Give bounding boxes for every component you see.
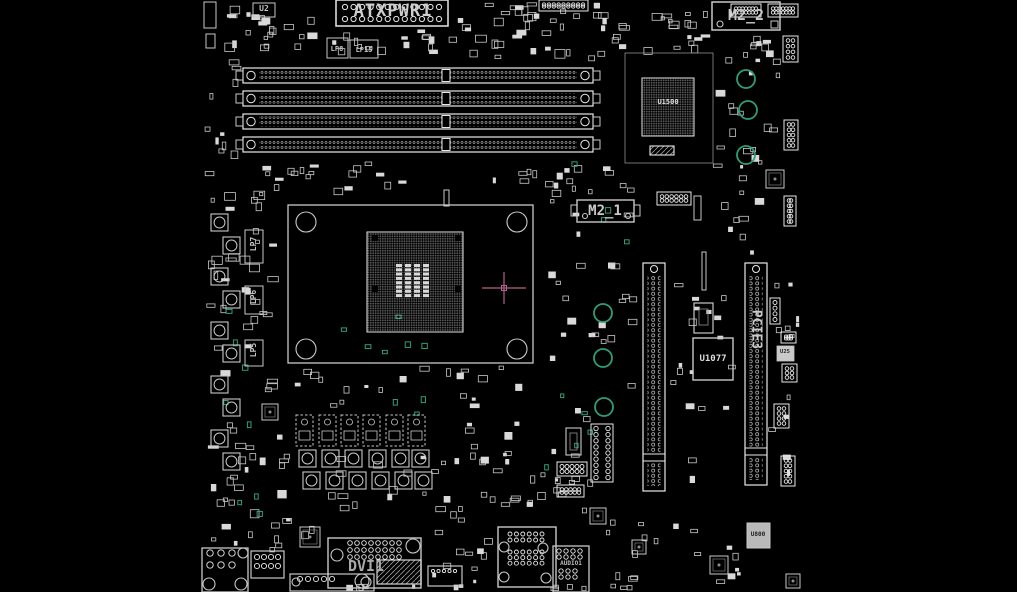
passive-component [475, 35, 486, 42]
passive-component [763, 40, 771, 44]
test-pad [238, 500, 242, 504]
passive-component [717, 580, 725, 584]
passive-component [277, 435, 283, 440]
passive-component [639, 523, 644, 526]
passive-component [231, 475, 238, 479]
passive-component [307, 33, 317, 40]
passive-component [691, 529, 698, 532]
socket-center-pads [414, 273, 420, 276]
circ [538, 543, 548, 553]
passive-component [575, 408, 581, 414]
passive-component [598, 51, 605, 56]
circ [626, 214, 631, 219]
passive-component [465, 28, 471, 32]
passive-component [687, 35, 691, 39]
circ [717, 21, 723, 27]
passive-component [701, 34, 711, 37]
passive-component [538, 493, 546, 500]
passive-component [519, 172, 527, 176]
passive-component [493, 178, 496, 184]
passive-component [473, 580, 476, 583]
socket-center-pads [405, 273, 411, 276]
passive-component [404, 42, 410, 48]
passive-component [211, 484, 216, 491]
rect [771, 21, 778, 28]
passive-component [679, 363, 683, 368]
passive-component [628, 188, 635, 192]
passive-component [520, 179, 529, 184]
passive-component [713, 164, 722, 167]
passive-component [735, 568, 739, 572]
pin-header [782, 364, 797, 382]
passive-component [739, 216, 749, 221]
passive-component [515, 384, 522, 391]
circ [238, 548, 248, 558]
passive-component [417, 30, 425, 34]
passive-component [785, 326, 790, 331]
vrm-choke [299, 450, 316, 467]
passive-component [688, 458, 696, 463]
passive-component [227, 423, 232, 428]
pin-header [784, 196, 796, 226]
socket-center-pads [423, 273, 429, 276]
passive-component [421, 456, 426, 459]
test-pad [575, 443, 578, 448]
passive-component [379, 388, 382, 393]
socket-center-pads [405, 294, 411, 297]
passive-component [740, 234, 745, 240]
passive-component [471, 444, 477, 449]
vrm-choke [211, 322, 228, 339]
passive-component [716, 90, 726, 97]
passive-component [249, 532, 253, 538]
passive-component [495, 55, 501, 58]
passive-component [730, 129, 736, 137]
label-u2: U2 [259, 5, 269, 13]
vrm-choke [223, 237, 240, 254]
passive-component [756, 59, 761, 62]
passive-component [267, 384, 278, 389]
passive-component [527, 502, 533, 507]
socket-center-pads [423, 286, 429, 289]
cooler-mount-hole [507, 339, 527, 359]
mounting-hole [737, 70, 755, 88]
rect [206, 34, 215, 48]
passive-component [552, 449, 557, 454]
passive-component [231, 151, 238, 159]
socket-center-pads [423, 277, 429, 280]
passive-component [429, 36, 435, 43]
passive-component [234, 485, 243, 491]
passive-component [776, 73, 779, 78]
test-pad [247, 422, 251, 428]
passive-component [743, 148, 753, 153]
circ [541, 573, 551, 583]
passive-component [235, 443, 245, 448]
passive-component [385, 182, 391, 189]
passive-component [629, 577, 638, 582]
passive-component [295, 383, 301, 387]
passive-component [279, 459, 288, 463]
passive-component [726, 58, 732, 63]
passive-component [484, 539, 492, 545]
vrm-choke [415, 472, 432, 489]
passive-component [729, 365, 736, 369]
passive-component [472, 567, 477, 570]
passive-component [207, 304, 215, 307]
passive-component [256, 203, 261, 211]
label-lp8: LP8 [331, 46, 344, 53]
passive-component [594, 3, 600, 9]
passive-component [365, 162, 372, 166]
passive-component [734, 218, 740, 223]
passive-component [253, 229, 258, 234]
passive-component [611, 520, 616, 525]
label-audio1: AUDIO1 [560, 561, 582, 567]
passive-component [244, 324, 253, 330]
passive-component [212, 538, 216, 541]
passive-component [593, 12, 601, 18]
passive-component [429, 50, 438, 54]
passive-component [589, 190, 593, 194]
rect [455, 286, 461, 292]
passive-component [505, 459, 509, 465]
passive-component [686, 403, 695, 409]
passive-component [622, 294, 629, 298]
passive-component [619, 44, 626, 49]
passive-component [567, 585, 572, 590]
passive-component [602, 18, 606, 25]
passive-component [737, 572, 741, 575]
socket-center-pads [396, 281, 402, 284]
socket-center-pads [414, 290, 420, 293]
socket-center-pads [396, 286, 402, 289]
passive-component [611, 584, 616, 588]
passive-component [265, 388, 271, 392]
passive-component [210, 94, 213, 100]
rect [455, 235, 461, 241]
test-pad [625, 240, 630, 244]
vrm-choke [372, 472, 389, 489]
label-u1077: U1077 [699, 355, 726, 364]
passive-component [456, 549, 464, 555]
passive-component [545, 47, 551, 51]
passive-component [628, 319, 637, 324]
passive-component [577, 232, 581, 237]
pin-header [783, 36, 798, 62]
passive-component [686, 12, 691, 15]
passive-component [279, 463, 284, 469]
circ [331, 549, 343, 561]
passive-component [481, 457, 489, 464]
passive-component [344, 186, 352, 190]
passive-component [787, 395, 790, 400]
passive-component [225, 193, 236, 201]
passive-component [291, 171, 298, 175]
passive-component [603, 166, 611, 171]
passive-component [628, 383, 635, 388]
passive-component [260, 458, 266, 466]
socket-center-pads [405, 268, 411, 271]
passive-component [266, 172, 270, 176]
passive-component [493, 469, 502, 473]
passive-component [308, 17, 314, 24]
passive-component [577, 263, 586, 268]
passive-component [620, 184, 626, 188]
passive-component [608, 336, 615, 342]
passive-component [264, 36, 268, 39]
passive-component [378, 47, 386, 54]
passive-component [740, 165, 743, 168]
passive-component [555, 50, 565, 59]
passive-component [775, 283, 779, 288]
rect [204, 2, 216, 28]
socket-center-pads [396, 277, 402, 280]
mounting-hole [594, 304, 612, 322]
rect [372, 235, 378, 241]
passive-component [400, 376, 407, 382]
passive-component [435, 530, 443, 534]
passive-component [582, 508, 586, 513]
passive-component [245, 467, 249, 473]
passive-component [516, 30, 526, 36]
passive-component [472, 398, 476, 401]
passive-component [621, 586, 627, 589]
passive-component [271, 523, 279, 528]
passive-component [689, 319, 696, 326]
passive-component [249, 264, 259, 272]
passive-component [229, 254, 240, 262]
passive-component [654, 539, 658, 544]
socket-center-pads [405, 286, 411, 289]
audio-jack-stack [202, 548, 248, 592]
passive-component [557, 173, 563, 180]
vrm-choke [223, 453, 240, 470]
passive-component [299, 35, 304, 39]
passive-component [460, 394, 466, 399]
socket-center-pads [423, 264, 429, 267]
mounting-hole [739, 101, 757, 119]
test-pad [255, 494, 259, 499]
passive-component [534, 14, 540, 19]
passive-component [306, 175, 310, 179]
passive-component [270, 26, 274, 34]
passive-component [692, 45, 698, 53]
passive-component [276, 543, 282, 548]
passive-component [739, 176, 746, 181]
passive-component [251, 317, 258, 324]
vrm-choke [349, 472, 366, 489]
passive-component [514, 422, 519, 426]
passive-component [466, 552, 473, 555]
passive-component [274, 185, 279, 191]
socket-center-pads [405, 281, 411, 284]
passive-component [302, 532, 309, 539]
test-pad [226, 309, 232, 313]
passive-component [674, 46, 680, 49]
socket-center-pads [414, 281, 420, 284]
passive-component [564, 168, 569, 173]
socket-center-pads [396, 268, 402, 271]
rect [444, 190, 449, 206]
passive-component [717, 146, 724, 149]
test-pad [422, 343, 427, 348]
passive-component [531, 48, 537, 54]
vrm-choke [326, 472, 343, 489]
circ [361, 577, 371, 587]
passive-component [458, 518, 464, 522]
passive-component [467, 423, 472, 427]
passive-component [337, 457, 346, 462]
circ [499, 572, 509, 582]
passive-component [205, 172, 214, 176]
rect [634, 205, 640, 216]
vrm-driver [363, 415, 380, 446]
rect [372, 286, 378, 292]
passive-component [533, 171, 537, 178]
vrm-choke [211, 430, 228, 447]
passive-component [796, 323, 799, 327]
cooler-mount-hole [296, 212, 316, 232]
vrm-choke [369, 450, 386, 467]
passive-component [694, 37, 702, 41]
passive-component [300, 168, 304, 174]
passive-component [212, 256, 222, 264]
passive-component [234, 541, 238, 546]
label-dvi1: DVI1 [348, 559, 384, 574]
passive-component [706, 310, 711, 314]
vrm-choke [303, 472, 320, 489]
rect [694, 196, 701, 220]
passive-component [690, 476, 695, 483]
test-pad [365, 345, 371, 349]
passive-component [560, 24, 563, 30]
passive-component [471, 453, 476, 459]
passive-component [755, 198, 764, 205]
test-pad [588, 430, 593, 434]
passive-component [572, 186, 575, 191]
circ [583, 214, 588, 219]
passive-component [714, 316, 721, 321]
socket-center-pads [405, 264, 411, 267]
passive-component [420, 366, 429, 371]
passive-component [669, 25, 678, 28]
rect [566, 428, 581, 455]
passive-component [499, 366, 503, 370]
passive-component [613, 34, 620, 39]
passive-component [331, 404, 337, 408]
passive-component [470, 404, 480, 409]
passive-component [546, 182, 554, 187]
passive-component [699, 407, 705, 411]
test-pad [257, 512, 262, 517]
passive-component [567, 50, 570, 56]
passive-component [728, 227, 733, 232]
passive-component [744, 53, 748, 58]
cooler-mount-hole [296, 339, 316, 359]
passive-component [766, 50, 774, 57]
passive-component [319, 377, 323, 382]
test-pad [545, 465, 549, 470]
label-u1500: U1500 [657, 99, 678, 106]
circ [292, 578, 300, 586]
passive-component [226, 207, 235, 211]
socket-center-pads [423, 294, 429, 297]
label-pcie3: PCIE3 [750, 310, 763, 349]
circ [355, 574, 369, 588]
label-m2_1: M2_1 [588, 204, 622, 218]
passive-component [269, 244, 277, 247]
passive-component [563, 296, 569, 301]
passive-component [389, 487, 397, 495]
cooler-mount-hole [507, 212, 527, 232]
passive-component [607, 530, 610, 535]
passive-component [284, 454, 289, 459]
vrm-choke [211, 376, 228, 393]
passive-component [432, 573, 436, 578]
passive-component [673, 524, 679, 529]
passive-component [447, 369, 451, 377]
passive-component [211, 198, 214, 202]
passive-component [310, 165, 319, 168]
socket-center-pads [423, 290, 429, 293]
passive-component [619, 26, 629, 31]
vrm-driver [319, 415, 336, 446]
vrm-choke [322, 450, 339, 467]
boardview-stage: ATXPWR1 M2_2 U1500 M2_1 U1077 PCIE3 DVI1… [0, 0, 1017, 592]
passive-component [295, 44, 301, 50]
passive-component [481, 492, 487, 497]
passive-component [267, 379, 277, 383]
passive-component [459, 507, 463, 512]
label-lp7: LP7 [250, 237, 258, 251]
socket-center-pads [405, 277, 411, 280]
passive-component [251, 197, 257, 203]
passive-component [542, 31, 551, 36]
passive-component [504, 432, 512, 440]
socket-center-pads [396, 273, 402, 276]
passive-component [584, 417, 591, 422]
socket-center-pads [414, 294, 420, 297]
passive-component [353, 502, 357, 509]
passive-component [675, 284, 684, 287]
passive-component [630, 297, 637, 302]
passive-component [515, 10, 522, 16]
passive-component [215, 137, 218, 144]
passive-component [275, 178, 284, 181]
passive-component [329, 493, 336, 499]
vrm-choke [211, 214, 228, 231]
passive-component [531, 476, 535, 483]
label-u25: U25 [780, 350, 790, 356]
passive-component [605, 171, 613, 176]
label-lp15: LP15 [356, 47, 373, 54]
passive-component [541, 473, 545, 477]
passive-component [458, 18, 463, 23]
passive-component [340, 400, 344, 404]
vrm-driver [408, 415, 425, 446]
test-pad [405, 342, 410, 348]
passive-component [661, 17, 664, 20]
passive-component [441, 461, 445, 465]
passive-component [527, 3, 536, 6]
test-pad [421, 397, 425, 403]
passive-component [355, 38, 358, 45]
boardview-canvas[interactable] [0, 0, 1017, 592]
passive-component [550, 19, 556, 23]
passive-component [277, 490, 286, 498]
passive-component [232, 66, 241, 70]
